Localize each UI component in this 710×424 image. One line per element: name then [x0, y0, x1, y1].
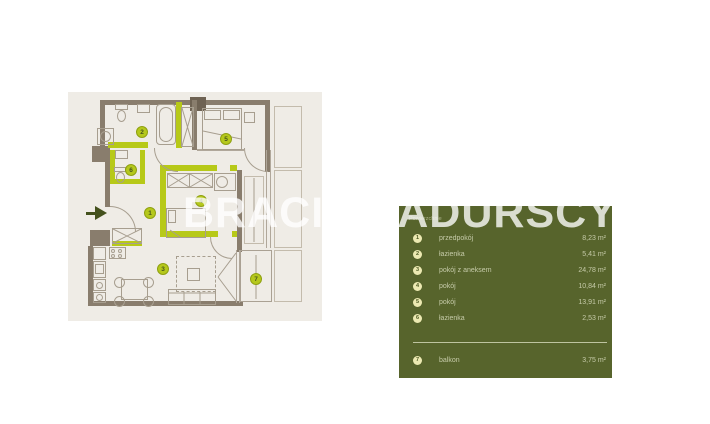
legend-room-label: pokój — [439, 299, 456, 306]
washbasin-icon — [115, 150, 128, 159]
kitchen-unit-knob-icon — [96, 294, 103, 301]
wardrobe-icon — [112, 228, 142, 244]
legend-divider — [413, 342, 607, 343]
legend-badge: 4 — [413, 282, 422, 291]
lime-wall-room4-top-end — [230, 165, 237, 171]
lime-wall-bath2-bottom — [108, 142, 148, 148]
legend-room-area: 8,23 m² — [582, 235, 606, 242]
room-badge-3: 3 — [157, 263, 169, 275]
legend-row: 4 pokój 10,84 m² — [399, 278, 612, 294]
lime-wall-room4-bottom-end — [232, 231, 237, 237]
legend-room-area: 3,75 m² — [582, 357, 606, 364]
wall-left-notch — [92, 146, 106, 162]
wall-left-jog — [90, 230, 110, 246]
legend-badge: 7 — [413, 356, 422, 365]
legend-room-label: pokój z aneksem — [439, 267, 492, 274]
floor-plan-page: 1 2 3 4 5 6 7 Powierzchnie 1 przedpokój … — [0, 0, 710, 424]
hob-burner-icon — [118, 249, 122, 253]
sofa-icon — [168, 289, 216, 305]
builtin-wardrobe-outline — [244, 176, 264, 244]
chair-icon — [216, 176, 228, 188]
legend-badge: 5 — [413, 298, 422, 307]
legend-room-area: 2,53 m² — [582, 315, 606, 322]
room-badge-2: 2 — [136, 126, 148, 138]
pillow-icon — [223, 110, 240, 120]
legend-badge: 2 — [413, 250, 422, 259]
legend-header: Powierzchnie — [409, 216, 442, 222]
legend-badge: 3 — [413, 266, 422, 275]
legend-row: 6 łazienka 2,53 m² — [399, 310, 612, 326]
legend-room-label: łazienka — [439, 315, 465, 322]
kitchen-sink-basin-icon — [95, 264, 104, 274]
wall-bottom — [88, 301, 243, 306]
facade-strip-upper — [274, 106, 302, 168]
chair-icon — [114, 296, 125, 307]
legend-room-area: 24,78 m² — [578, 267, 606, 274]
facade-strip-mid — [274, 170, 302, 248]
washbasin-icon — [137, 104, 150, 113]
legend-room-label: przedpokój — [439, 235, 473, 242]
legend-footer-row: 7 balkon 3,75 m² — [399, 352, 612, 368]
kitchen-unit-knob-icon — [96, 282, 103, 289]
coffee-table-icon — [187, 268, 200, 281]
legend-rows: 1 przedpokój 8,23 m² 2 łazienka 5,41 m² … — [399, 230, 612, 326]
nightstand-icon — [244, 112, 255, 123]
pillow-icon — [168, 210, 176, 223]
chair-icon — [143, 277, 154, 288]
room-badge-4: 4 — [195, 195, 207, 207]
room-badge-7: 7 — [250, 273, 262, 285]
room-badge-6: 6 — [125, 164, 137, 176]
legend-room-area: 13,91 m² — [578, 299, 606, 306]
toilet-bowl-icon — [117, 110, 126, 122]
room-badge-1: 1 — [144, 207, 156, 219]
lime-wall-bath6-bottom — [110, 179, 145, 184]
wardrobe-icon — [167, 173, 190, 188]
wardrobe-icon — [181, 107, 194, 147]
legend-room-area: 5,41 m² — [582, 251, 606, 258]
legend-room-label: pokój — [439, 283, 456, 290]
washer-drum-icon — [100, 131, 111, 142]
legend-room-area: 10,84 m² — [578, 283, 606, 290]
entry-arrow-icon — [95, 206, 107, 220]
legend-row: 2 łazienka 5,41 m² — [399, 246, 612, 262]
legend-room-label: łazienka — [439, 251, 465, 258]
legend-row: 3 pokój z aneksem 24,78 m² — [399, 262, 612, 278]
legend-badge: 6 — [413, 314, 422, 323]
legend-row: 1 przedpokój 8,23 m² — [399, 230, 612, 246]
wardrobe-icon — [189, 173, 213, 188]
toilet-bowl-icon — [116, 172, 125, 183]
bathtub-inner-icon — [159, 107, 173, 142]
chair-icon — [114, 277, 125, 288]
wall-room4-right — [237, 170, 242, 252]
legend-row: 5 pokój 13,91 m² — [399, 294, 612, 310]
legend-room-label: balkon — [439, 357, 460, 364]
hob-burner-icon — [111, 249, 115, 253]
hob-burner-icon — [111, 254, 115, 258]
legend-badge: 1 — [413, 234, 422, 243]
hob-burner-icon — [118, 254, 122, 258]
legend-panel: Powierzchnie 1 przedpokój 8,23 m² 2 łazi… — [399, 206, 612, 378]
room-badge-5: 5 — [220, 133, 232, 145]
chair-icon — [143, 296, 154, 307]
fridge-icon — [93, 247, 106, 260]
pillow-icon — [204, 110, 221, 120]
facade-strip-lower — [274, 250, 302, 302]
